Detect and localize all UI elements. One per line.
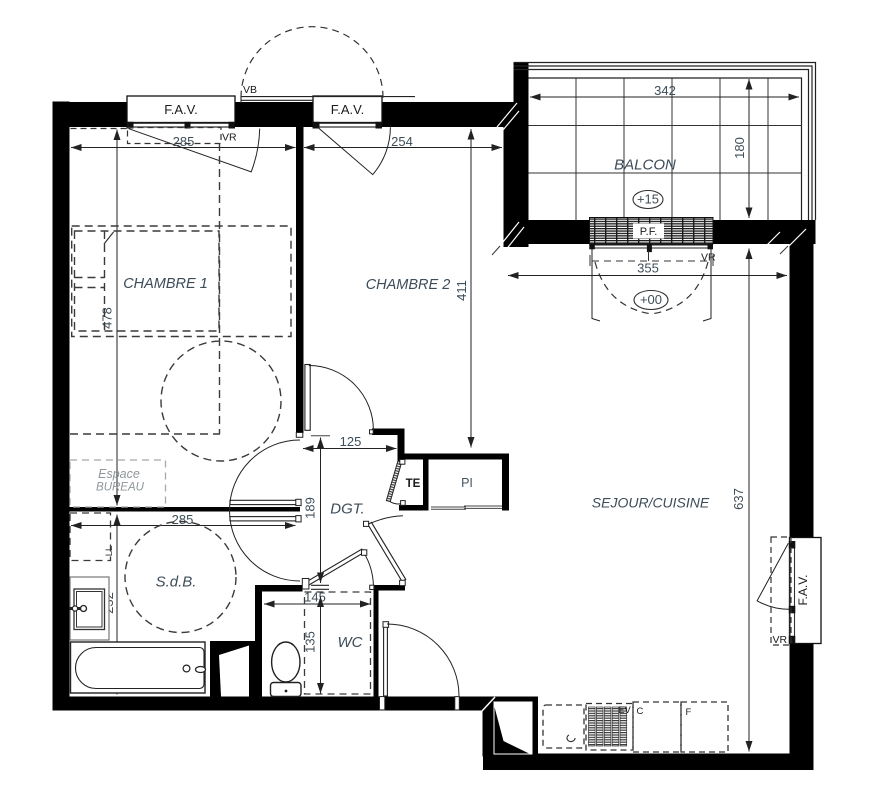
svg-text:Espace: Espace	[98, 467, 140, 481]
svg-text:637: 637	[731, 488, 746, 510]
svg-text:SEJOUR/CUISINE: SEJOUR/CUISINE	[592, 495, 710, 511]
svg-text:TE: TE	[406, 478, 421, 490]
svg-text:VR: VR	[701, 252, 716, 264]
svg-text:F: F	[686, 707, 692, 718]
svg-text:+00: +00	[640, 292, 662, 307]
svg-text:C: C	[637, 706, 644, 717]
svg-text:125: 125	[340, 434, 362, 449]
svg-text:342: 342	[654, 83, 676, 98]
svg-text:F.A.V.: F.A.V.	[331, 102, 364, 117]
svg-text:PI: PI	[461, 476, 473, 490]
svg-text:VB: VB	[243, 84, 257, 96]
svg-text:P.F.: P.F.	[640, 226, 658, 238]
svg-text:285: 285	[172, 512, 194, 527]
svg-text:411: 411	[454, 280, 469, 301]
svg-text:F.A.V.: F.A.V.	[164, 102, 197, 117]
svg-text:254: 254	[391, 134, 413, 149]
svg-text:180: 180	[732, 137, 747, 159]
svg-text:VR: VR	[222, 132, 237, 144]
svg-text:189: 189	[303, 497, 318, 519]
svg-text:S.d.B.: S.d.B.	[156, 574, 197, 591]
svg-text:CHAMBRE 1: CHAMBRE 1	[123, 276, 208, 292]
svg-text:EV: EV	[618, 705, 631, 716]
svg-text:WC: WC	[338, 634, 363, 651]
svg-text:+15: +15	[637, 192, 659, 207]
svg-text:BALCON: BALCON	[614, 157, 676, 174]
svg-text:285: 285	[173, 134, 195, 149]
svg-text:478: 478	[100, 307, 115, 329]
svg-text:BUREAU: BUREAU	[96, 482, 145, 494]
svg-text:LL: LL	[104, 546, 115, 557]
svg-text:355: 355	[637, 261, 659, 276]
svg-text:DGT.: DGT.	[330, 501, 364, 518]
svg-text:CHAMBRE 2: CHAMBRE 2	[366, 277, 451, 293]
svg-text:F.A.V.: F.A.V.	[796, 575, 810, 606]
svg-text:VR: VR	[773, 634, 788, 646]
